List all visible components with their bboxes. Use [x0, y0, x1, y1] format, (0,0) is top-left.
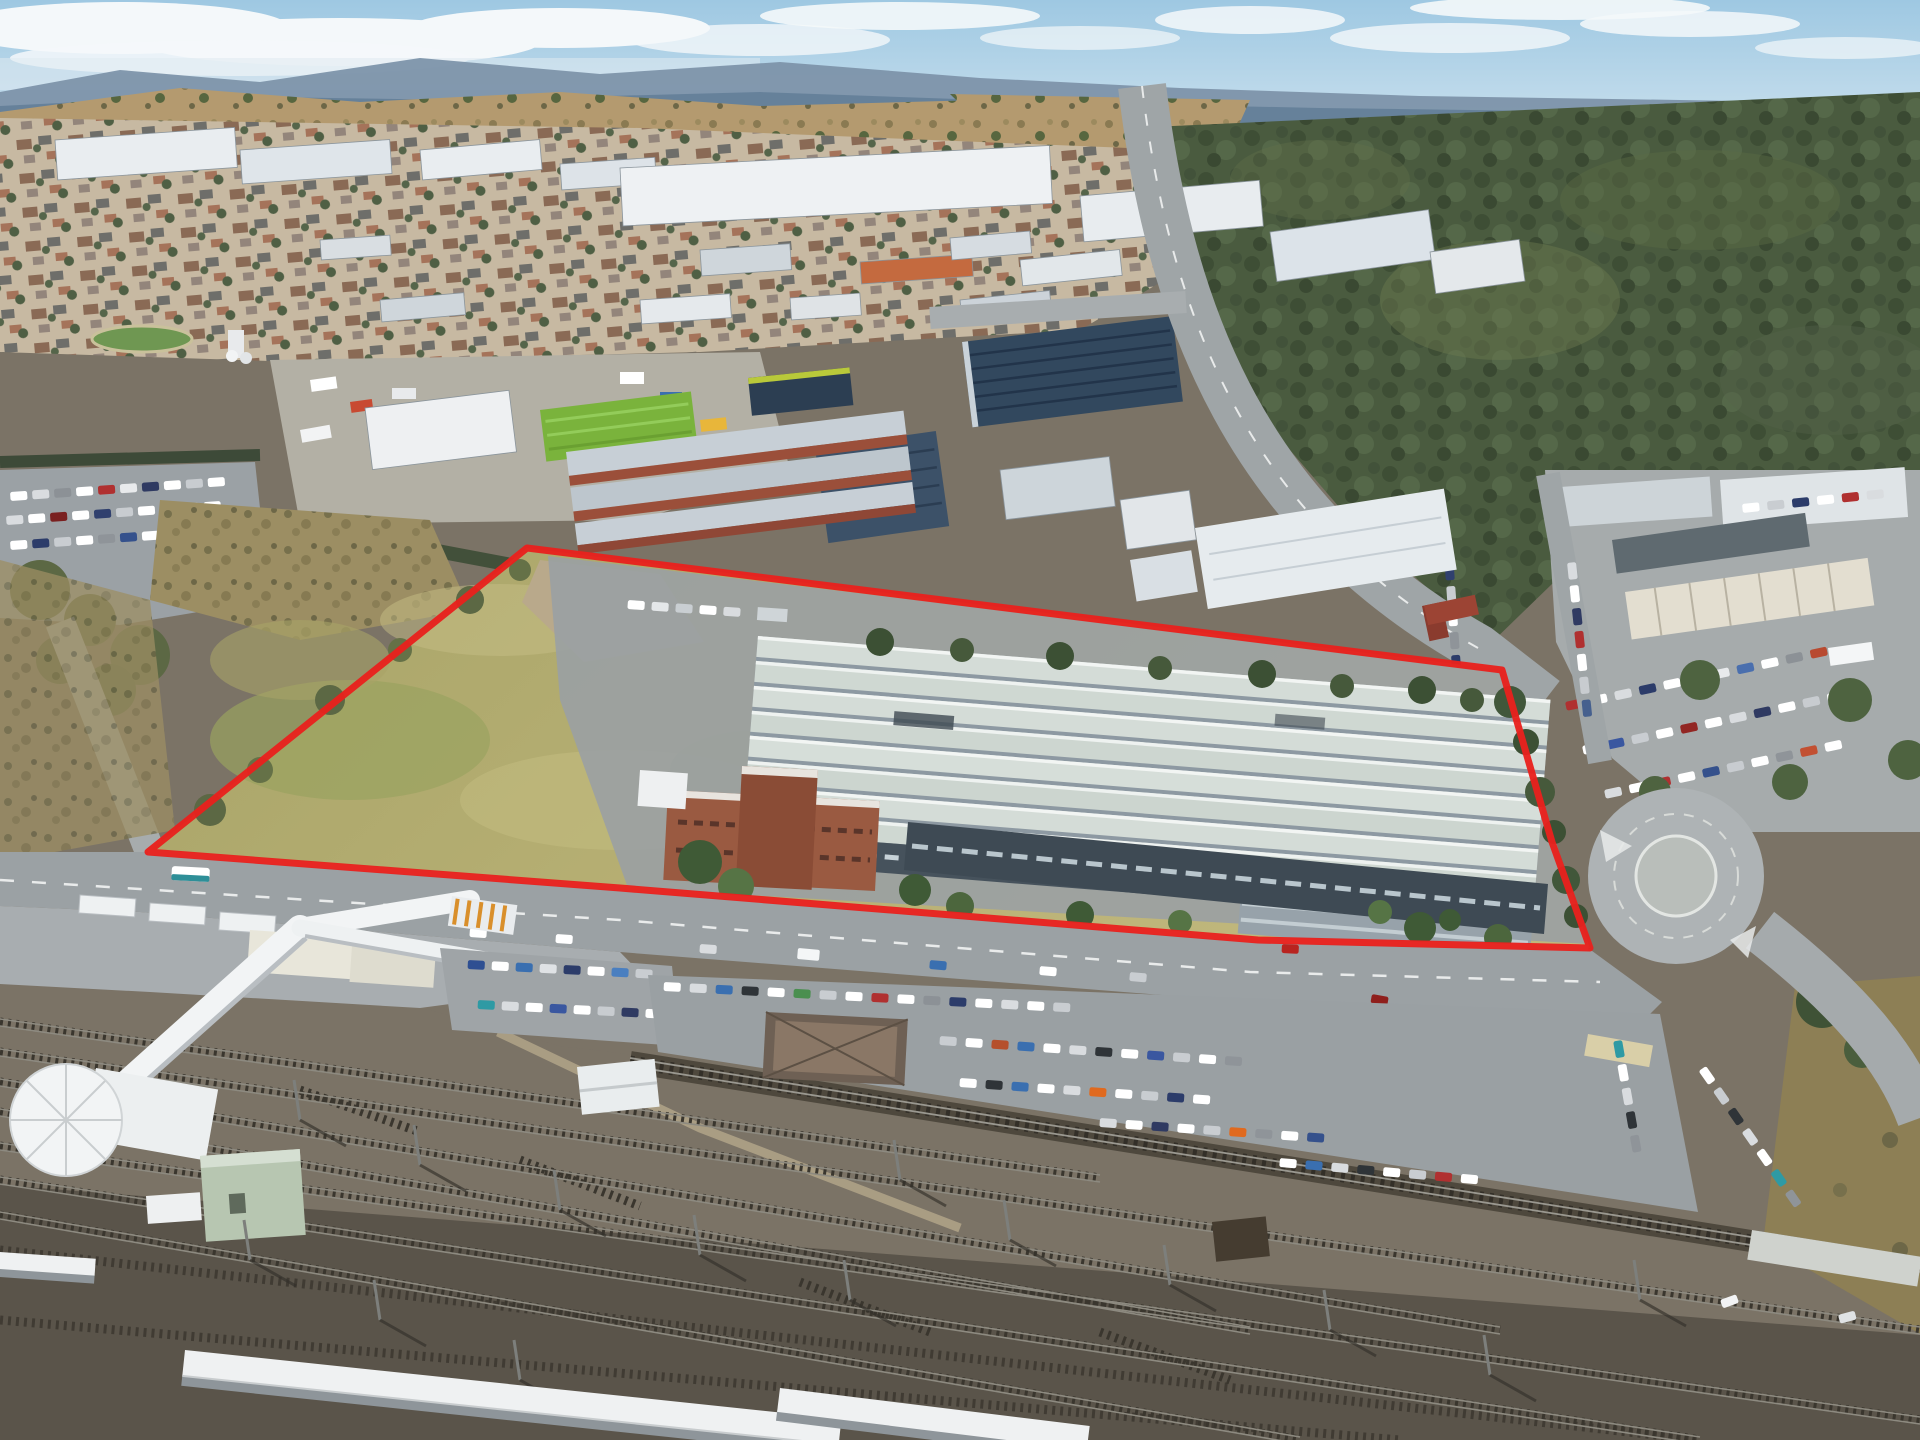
dark-shed: [1212, 1216, 1270, 1261]
white-trailer: [146, 1192, 202, 1224]
office-tower: [736, 766, 818, 890]
gatehouse: [637, 770, 687, 809]
bus: [171, 866, 210, 882]
heritage-house: [763, 1012, 908, 1085]
sports-oval: [92, 326, 192, 352]
dealership-east: [1545, 467, 1920, 832]
aerial-photo-canvas: [0, 0, 1920, 1440]
white-hut: [577, 1059, 660, 1115]
aerial-photo: [0, 0, 1920, 1440]
green-shed: [200, 1149, 306, 1242]
commuter-carpark: [440, 948, 680, 1046]
